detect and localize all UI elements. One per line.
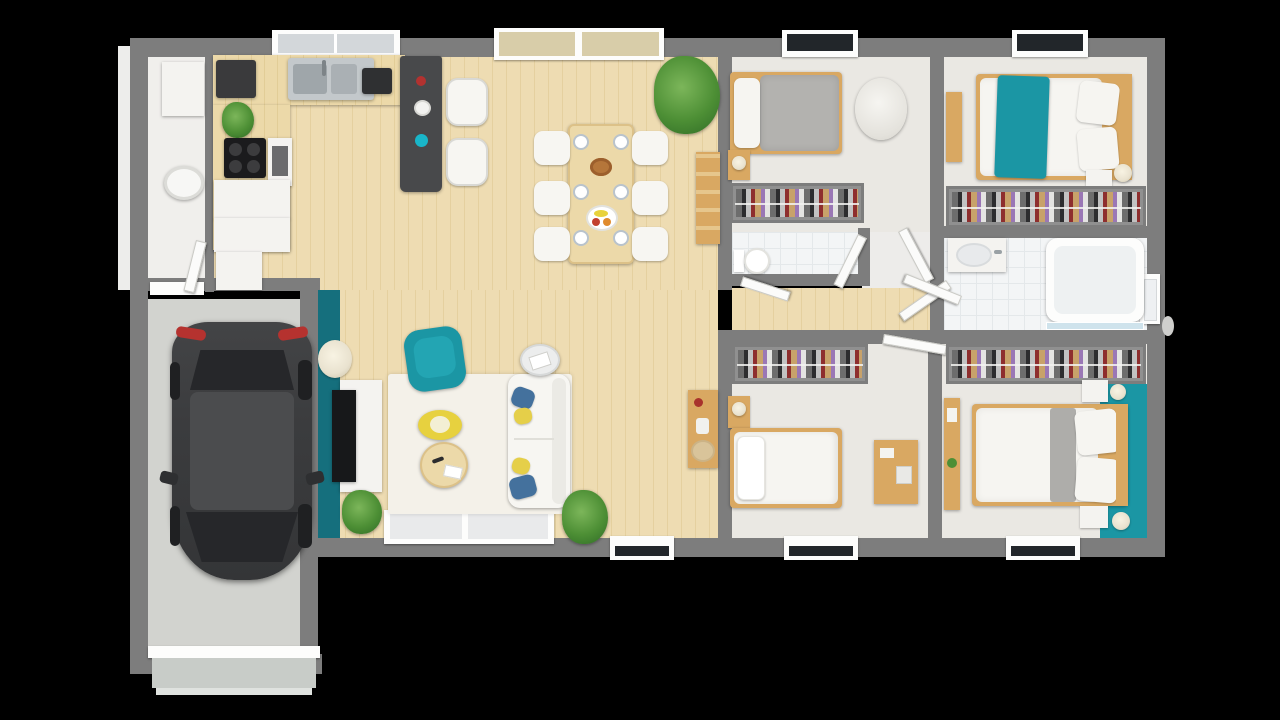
decor-bowl [430,416,450,433]
wall-left [130,38,148,294]
car-roof [190,392,294,510]
living-plant-left [342,490,382,534]
dining-chair [632,131,668,165]
kitchen-window-mullion [334,34,337,53]
toilet-tank [734,250,744,272]
bed2-pillow [1076,80,1121,127]
bedroom4-lamp [732,402,746,416]
armchair-seat [412,334,457,379]
bedroom4-desk [874,440,918,504]
garage-door-frame [148,646,320,658]
living-window-2-glass [615,546,669,556]
bedroom4-window-glass [789,546,853,556]
red-flower [694,398,703,407]
desk-plant [947,458,957,468]
desk-papers [947,408,957,422]
bed3-gray-runner [1050,408,1076,502]
toilet-bowl [744,248,770,274]
bed3-pillow [1074,456,1120,503]
bedroom3-nightstand-bottom [1080,506,1108,528]
plate [573,230,589,246]
fruit-plate [586,205,618,231]
kitchen-base-cabinet-1 [214,180,290,219]
dining-sliding-door [494,28,664,60]
burner [229,160,242,173]
floor-plan-canvas [0,0,1280,720]
garage-door-panel-edge [156,688,312,695]
dining-chair [534,181,570,215]
fruit-orange [603,218,611,226]
bed1-pillow [734,78,760,148]
fruit-apple [592,218,600,226]
living-plant-right [562,490,608,544]
garage-door-panel [152,658,316,688]
dining-glass-2 [582,32,659,56]
toaster [362,68,392,94]
ladder-shelf [696,152,720,244]
kitchen-window [272,30,400,57]
cooktop [224,138,266,178]
bread-basket [590,158,612,176]
console-table [688,390,718,468]
dining-chair [632,227,668,261]
bedroom3-nightstand-top [1082,380,1108,402]
bedroom3-closet [946,344,1146,384]
plate [573,134,589,150]
coffee-table-yellow [418,410,462,440]
snack-bowl [414,100,431,116]
car-windshield [186,512,298,562]
bed2-pillow [1076,126,1120,171]
living-door-pane-2 [468,514,548,539]
bar-island [400,56,442,192]
side-table [520,344,560,376]
bedroom2-window [1012,30,1088,57]
desk-papers [880,448,894,458]
bathroom-basin [956,243,992,267]
bedroom2-closet [946,186,1146,228]
plate [613,230,629,246]
front-door-panel [1144,279,1157,321]
utility-wall-cabinet [162,62,204,116]
bedroom4-window [784,536,858,560]
bedroom3-window-glass [1011,546,1075,556]
bedroom1-lamp [732,156,746,170]
bedroom2-wall-shelf [946,92,962,162]
coffee-table-wood [420,442,468,488]
wall-garage-left [130,286,148,674]
bed2-teal-throw [994,75,1050,179]
dining-chair [534,131,570,165]
living-door-pane-1 [390,514,462,539]
kitchen-plant [222,102,254,138]
sink-basin-right [331,64,357,94]
car-wheel [298,504,312,548]
bathtub-inner [1054,246,1136,314]
dining-chair [534,227,570,261]
plate [613,184,629,200]
dining-large-plant [654,56,720,134]
tv [332,390,356,482]
closet-rail [735,203,859,205]
desk-laptop [896,466,912,484]
bedroom1-window [782,30,858,57]
plate [573,184,589,200]
kitchen-base-cabinet-3 [216,252,262,290]
bedroom3-lamp-top [1110,384,1126,400]
shower-screen [1046,322,1144,330]
floor-lamp [318,340,352,378]
coffee-machine [216,60,256,98]
car-wheel [170,362,180,400]
closet-rail [951,364,1141,366]
bedroom3-desk [944,398,960,510]
teal-cup [415,134,428,147]
bar-stool-1 [446,78,488,126]
bedroom2-window-glass [1017,34,1083,51]
plate [613,134,629,150]
bed4-pillow [737,436,765,500]
exterior-wall-lamp [1162,316,1174,336]
fruit-banana [594,210,608,217]
bathroom-faucet [994,250,1002,254]
burner [229,143,242,156]
burner [247,143,260,156]
magazines [528,351,551,370]
bedroom1-closet [730,183,864,223]
car-wheel [170,506,180,546]
bed3-headboard [1116,404,1128,506]
living-window-2 [610,536,674,560]
car-rear-window [190,350,294,390]
armchair-teal [402,324,468,393]
red-cup [416,76,426,86]
bedroom1-window-glass [787,34,853,51]
vase [696,418,709,434]
bathtub [1046,238,1144,322]
oven-glass [272,146,288,176]
magazine [443,464,463,479]
closet-rail [951,207,1141,209]
dining-glass-1 [499,32,575,56]
kitchen-base-cabinet-2 [214,218,290,252]
sofa-seat-line [514,438,554,440]
sink-faucet [322,60,326,76]
dining-chair [632,181,668,215]
bathroom-vanity [948,238,1006,272]
bedroom2-lamp [1114,164,1132,182]
remote [432,456,445,464]
burner [247,160,260,173]
car-wheel [298,360,312,400]
decor-plate [691,440,715,462]
washer [164,166,204,200]
wall-bedroom1-bedroom2 [930,55,944,235]
bed1-duvet-gray [760,75,839,151]
bed3-pillow [1074,408,1120,456]
bedroom3-window [1006,536,1080,560]
bedroom3-lamp-bottom [1112,512,1130,530]
bar-stool-2 [446,138,488,186]
beanbag [855,78,907,140]
living-sliding-door [384,510,554,544]
wall-bedroom3-bedroom4 [928,344,942,538]
sofa-backrest [552,378,566,504]
oven-column [268,138,292,186]
closet-rail [737,364,863,366]
bedroom4-closet [732,344,868,384]
